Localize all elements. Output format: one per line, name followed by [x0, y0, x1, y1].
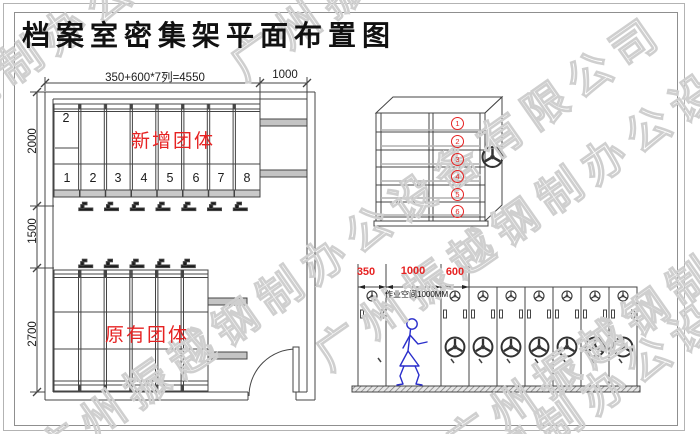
- cad-drawing: [0, 0, 700, 434]
- work-space-note: 作业空间1000MM: [385, 289, 448, 300]
- shelf-number-badge: 5: [451, 188, 464, 201]
- elev-dim-1000: 1000: [394, 265, 432, 277]
- elev-dim-600: 600: [437, 266, 473, 278]
- shelf-number-badge: 3: [451, 153, 464, 166]
- upper-shelving-block: [54, 104, 260, 211]
- door-swing: [249, 347, 299, 396]
- lower-block-label: 原有团体: [105, 320, 189, 347]
- elevation-view: [352, 264, 640, 392]
- dim-label-left-2000: 2000: [27, 128, 39, 154]
- cabinet-3d-view: [374, 97, 502, 226]
- column-number: 3: [105, 171, 131, 185]
- shelf-number-badge: 4: [451, 170, 464, 183]
- shelf-number-badge: 6: [451, 205, 464, 218]
- dim-label-left-1500: 1500: [27, 218, 39, 244]
- drawing-title: 档案室密集架平面布置图: [22, 14, 396, 54]
- crank-handle-icons: [79, 259, 196, 267]
- drawing-sheet: 广州振越钢制办公设备有限公司 广州振越钢制办公设备有限公司 广州振越钢制办公设备…: [0, 0, 700, 434]
- crank-handle-icons: [79, 202, 248, 210]
- elevation-panels-mobile: [441, 287, 637, 386]
- upper-block-corner-cell: 2: [58, 111, 74, 125]
- dim-label-top-right: 1000: [258, 69, 312, 81]
- column-number: 6: [183, 171, 209, 185]
- shelf-number-badge: 1: [451, 117, 464, 130]
- person-figure: [397, 319, 427, 385]
- column-number: 4: [131, 171, 157, 185]
- column-number: 7: [208, 171, 234, 185]
- upper-block-label: 新增团体: [131, 126, 215, 153]
- shelf-number-badge: 2: [451, 135, 464, 148]
- column-number: 8: [234, 171, 260, 185]
- column-number: 2: [80, 171, 106, 185]
- elev-dim-350: 350: [348, 266, 384, 278]
- dim-label-top-main: 350+600*7列=4550: [60, 69, 250, 85]
- ground-hatch: [352, 386, 640, 392]
- column-number: 1: [54, 171, 80, 185]
- column-number: 5: [157, 171, 183, 185]
- elevation-panel-fixed: [358, 287, 386, 386]
- dim-label-left-2700: 2700: [27, 321, 39, 347]
